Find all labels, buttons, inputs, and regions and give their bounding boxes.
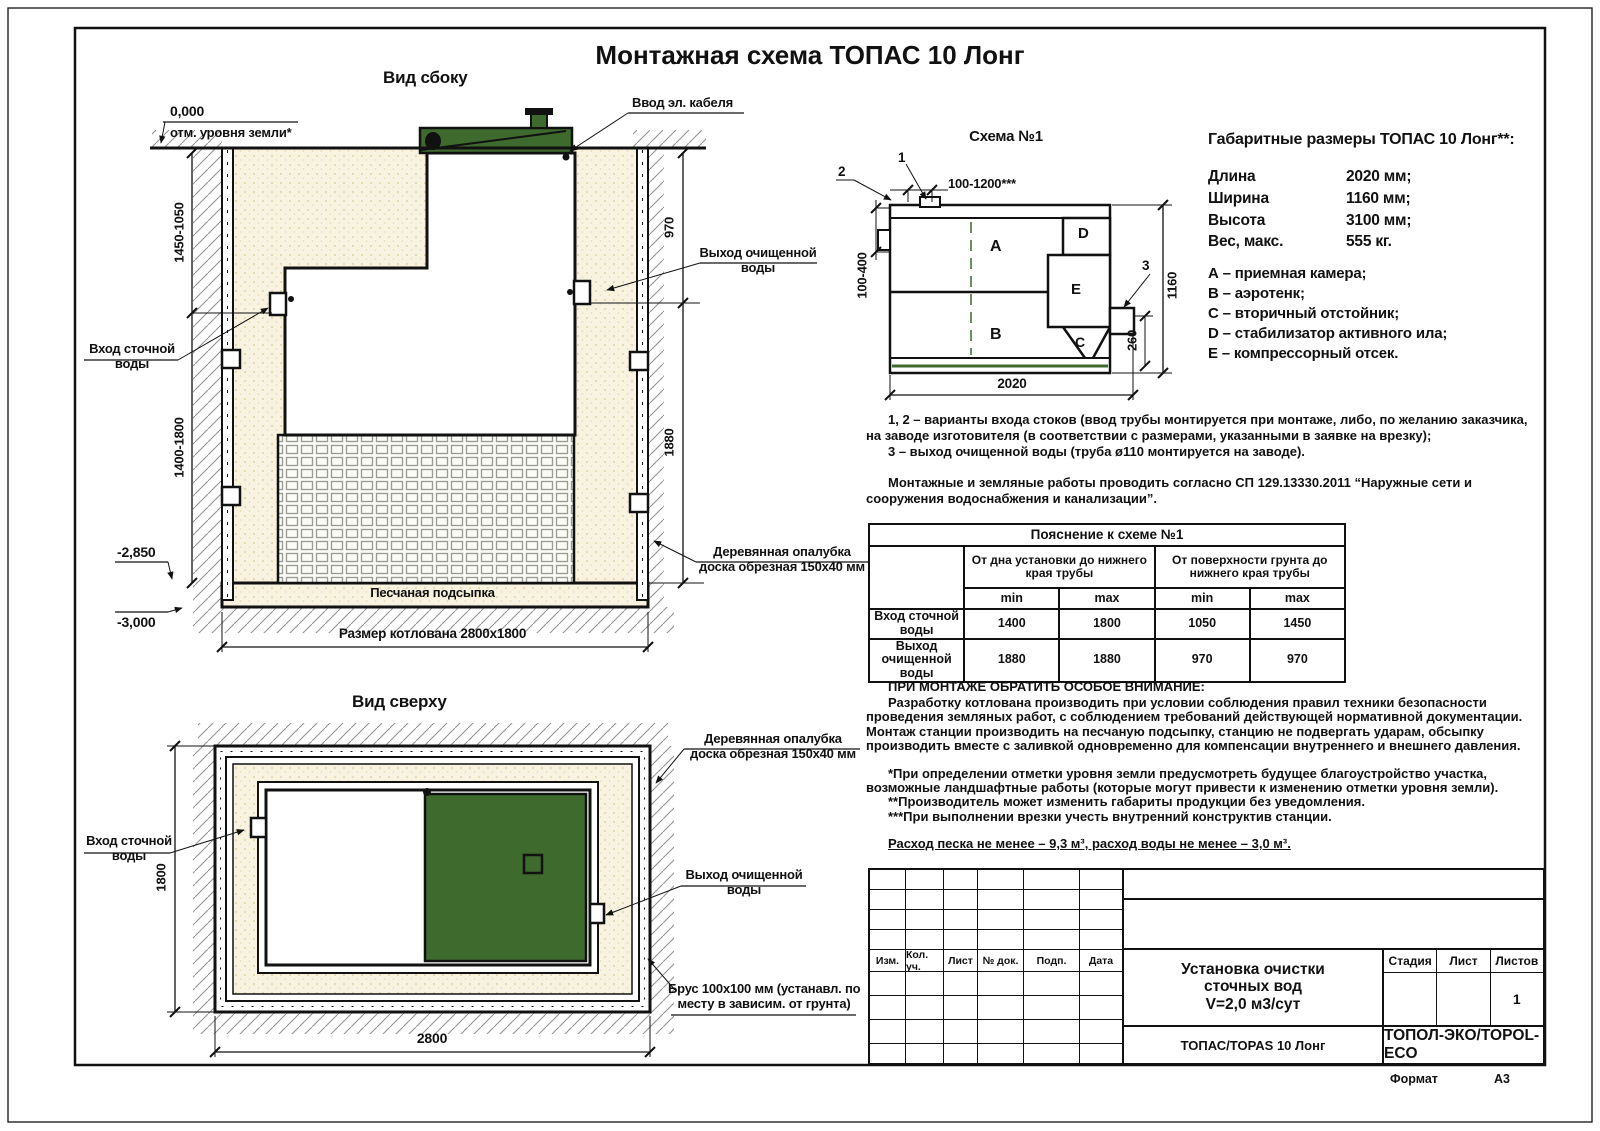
title-block-main: Установка очистки сточных вод V=2,0 м3/с… xyxy=(1124,870,1543,1063)
legend-c: С – вторичный отстойник; xyxy=(1208,306,1399,323)
anchoring-layer xyxy=(278,435,574,583)
col-kol: Кол. уч. xyxy=(906,950,944,972)
note-outlet: 3 – выход очищенной воды (труба ø110 мон… xyxy=(866,444,1538,460)
col-max-2: max xyxy=(1250,588,1345,609)
compartment-b: B xyxy=(990,326,1001,344)
legend-b: В – аэротенк; xyxy=(1208,286,1305,303)
warning-note-1: *При определении отметки уровня земли пр… xyxy=(866,767,1542,795)
outlet-stub-top xyxy=(590,904,604,923)
sheet-value xyxy=(1437,973,1490,1026)
schema-drawing xyxy=(836,164,1172,400)
dim-1880: 1880 xyxy=(662,398,677,488)
note-sp-standard: Монтажные и земляные работы проводить со… xyxy=(866,475,1538,507)
table-group-1: От дна установки до нижнего края трубы xyxy=(964,546,1154,588)
table-row: Вход сточной воды 1400 1800 1050 1450 xyxy=(869,609,1345,639)
dim-2800: 2800 xyxy=(402,1031,462,1047)
schema-title: Схема №1 xyxy=(956,129,1056,146)
legend-d: D – стабилизатор активного ила; xyxy=(1208,326,1447,343)
col-min-1: min xyxy=(964,588,1059,609)
col-min-2: min xyxy=(1155,588,1250,609)
callout-1: 1 xyxy=(898,150,905,165)
explanation-table: Пояснение к схеме №1 От дна установки до… xyxy=(868,523,1346,683)
dim-100-1200: 100-1200*** xyxy=(948,177,1016,192)
sheet-label: Лист xyxy=(1437,950,1490,972)
sheets-value: 1 xyxy=(1491,973,1543,1026)
title-block: Изм. Кол. уч. Лист № док. Подп. Дата Уст… xyxy=(868,868,1545,1065)
col-izm: Изм. xyxy=(870,950,906,972)
stage-label: Стадия xyxy=(1384,950,1437,972)
outlet-label-side: Выход очищеннойводы xyxy=(698,246,818,275)
col-ndok: № док. xyxy=(978,950,1024,972)
dim-260: 260 xyxy=(1125,296,1140,386)
dim-1160: 1160 xyxy=(1165,241,1180,331)
title-block-empty-row xyxy=(1124,870,1543,900)
spec-row-length: Длина2020 мм; xyxy=(1208,168,1411,185)
title-block-empty-row xyxy=(1124,900,1543,949)
col-data: Дата xyxy=(1080,950,1122,972)
legend-e: Е – компрессорный отсек. xyxy=(1208,346,1398,363)
inlet-label-side: Вход сточнойводы xyxy=(84,342,180,371)
compartment-a: A xyxy=(990,238,1001,256)
cable-entry-point xyxy=(563,154,570,161)
inlet-stub-top xyxy=(251,818,266,837)
stage-table: Стадия Лист Листов 1 xyxy=(1384,950,1543,1026)
callout-3: 3 xyxy=(1142,258,1149,273)
schema-inlet-1 xyxy=(920,197,940,207)
note-inlet-variants: 1, 2 – варианты входа стоков (ввод трубы… xyxy=(866,412,1538,444)
top-view-title: Вид сверху xyxy=(352,692,447,711)
revision-table: Изм. Кол. уч. Лист № док. Подп. Дата xyxy=(870,870,1124,1063)
spec-row-weight: Вес, макс.555 кг. xyxy=(1208,233,1392,250)
consumption-note: Расход песка не менее – 9,3 м³, расход в… xyxy=(866,837,1542,851)
side-view-title: Вид сбоку xyxy=(383,68,468,87)
format-value: А3 xyxy=(1494,1072,1510,1086)
compartment-c: C xyxy=(1075,335,1085,351)
green-lid-top xyxy=(425,794,586,961)
compartment-e: E xyxy=(1071,282,1081,299)
inlet-stub-side xyxy=(270,293,286,315)
sheets-label: Листов xyxy=(1491,950,1543,972)
dim-970: 970 xyxy=(662,183,677,273)
beam-label: Брус 100х100 мм (устанавл. поместу в зав… xyxy=(668,982,860,1011)
warning-title: ПРИ МОНТАЖЕ ОБРАТИТЬ ОСОБОЕ ВНИМАНИЕ: xyxy=(866,680,1542,694)
formwork-label-side: Деревянная опалубкадоска обрезная 150х40… xyxy=(696,545,868,574)
stage-value xyxy=(1384,973,1437,1026)
format-note: Формат А3 xyxy=(1390,1072,1510,1086)
table-corner-cell xyxy=(869,546,964,609)
schema-notes: 1, 2 – варианты входа стоков (ввод трубы… xyxy=(866,412,1538,507)
outlet-label-top: Выход очищеннойводы xyxy=(681,868,807,897)
dim-1800: 1800 xyxy=(154,833,169,923)
table-row: Выход очищенной воды 1880 1880 970 970 xyxy=(869,639,1345,682)
col-list: Лист xyxy=(944,950,978,972)
spec-row-width: Ширина1160 мм; xyxy=(1208,190,1410,207)
warning-body: Разработку котлована производить при усл… xyxy=(866,696,1542,753)
col-podp: Подп. xyxy=(1024,950,1080,972)
dim-2020: 2020 xyxy=(980,376,1044,391)
zero-level-note: отм. уровня земли* xyxy=(170,126,291,141)
compartment-d: D xyxy=(1078,226,1089,243)
vent-pipe xyxy=(531,114,547,128)
formwork-label-top: Деревянная опалубкадоска обрезная 150х40… xyxy=(684,732,862,761)
level-mark-2850: -2,850 xyxy=(117,545,156,561)
table-group-2: От поверхности грунта до нижнего края тр… xyxy=(1155,546,1345,588)
dim-100-400: 100-400 xyxy=(855,231,870,321)
zero-level-mark: 0,000 xyxy=(170,104,204,120)
callout-2: 2 xyxy=(838,164,845,179)
product-name: ТОПАС/TOPAS 10 Лонг xyxy=(1124,1027,1384,1063)
formwork-right xyxy=(637,148,648,600)
page-title: Монтажная схема ТОПАС 10 Лонг xyxy=(590,40,1030,71)
table-title: Пояснение к схеме №1 xyxy=(869,524,1345,546)
legend-a: А – приемная камера; xyxy=(1208,266,1366,283)
col-max-1: max xyxy=(1059,588,1154,609)
spec-row-height: Высота3100 мм; xyxy=(1208,212,1411,229)
dim-1450-1050: 1450-1050 xyxy=(172,188,187,278)
format-label: Формат xyxy=(1390,1072,1438,1086)
outlet-stub-side xyxy=(574,281,590,304)
pit-size-label: Размер котлована 2800х1800 xyxy=(330,626,535,641)
specs-title: Габаритные размеры ТОПАС 10 Лонг**: xyxy=(1208,131,1515,149)
document-title: Установка очистки сточных вод V=2,0 м3/с… xyxy=(1124,950,1384,1026)
installation-warning: ПРИ МОНТАЖЕ ОБРАТИТЬ ОСОБОЕ ВНИМАНИЕ: Ра… xyxy=(866,680,1542,851)
level-mark-3000: -3,000 xyxy=(117,615,156,631)
company-name: ТОПОЛ-ЭКО/TOPOL-ECO xyxy=(1384,1027,1543,1063)
sand-bed-label: Песчаная подсыпка xyxy=(360,586,505,601)
formwork-left xyxy=(222,148,233,600)
warning-note-2: **Производитель может изменить габариты … xyxy=(866,795,1542,809)
dim-1400-1800: 1400-1800 xyxy=(172,403,187,493)
cable-entry-label: Ввод эл. кабеля xyxy=(632,96,733,111)
warning-note-3: ***При выполнении врезки учесть внутренн… xyxy=(866,810,1542,824)
drawing-sheet: Монтажная схема ТОПАС 10 Лонг Вид сбоку … xyxy=(0,0,1600,1131)
